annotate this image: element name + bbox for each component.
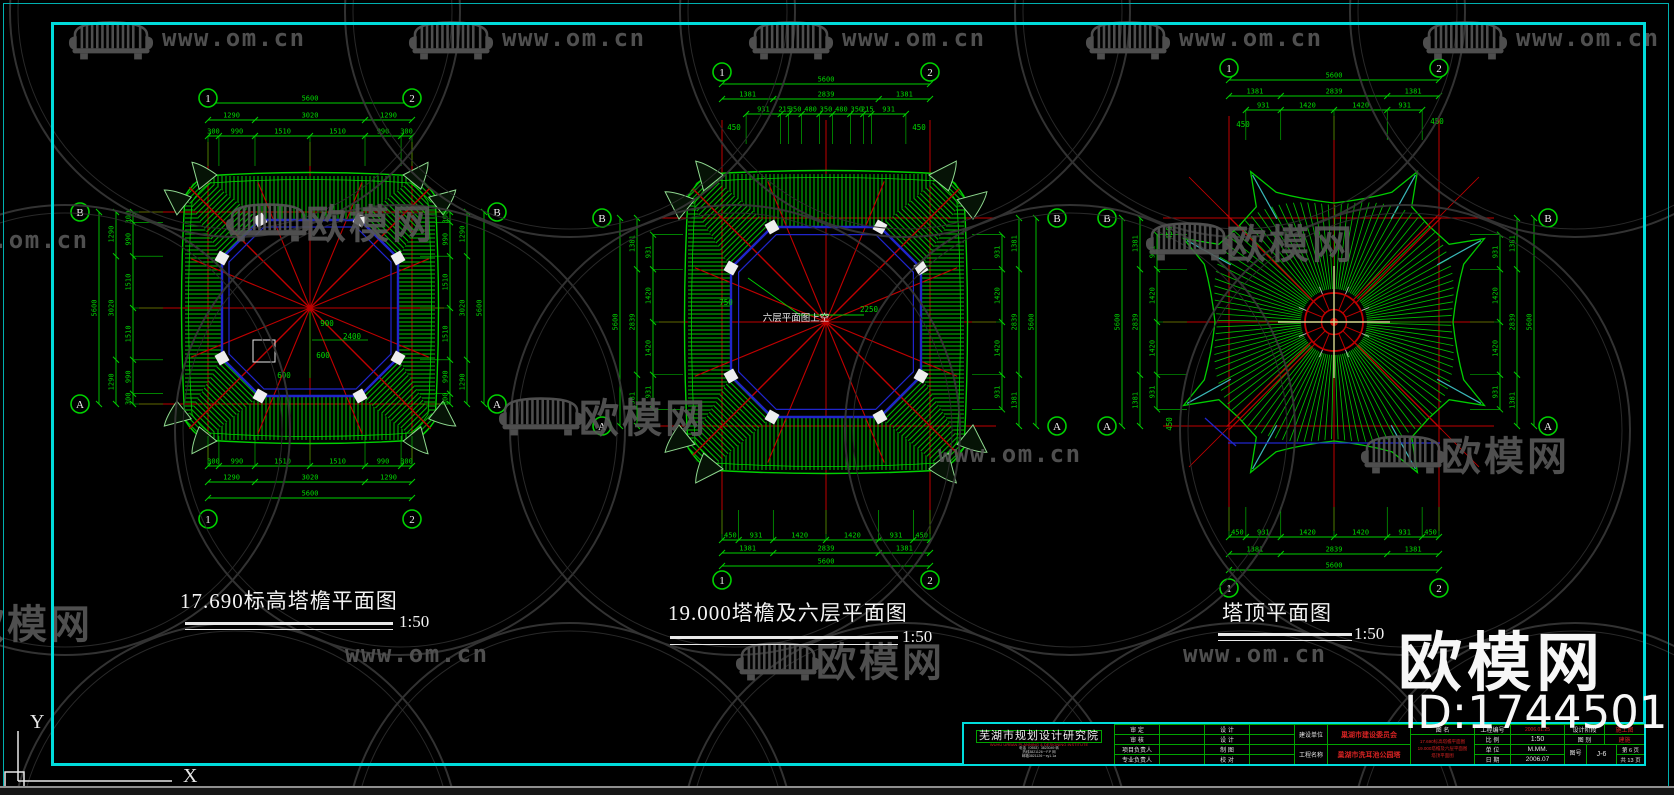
axis-bubble: 2	[921, 63, 939, 81]
dim-text: 1290	[108, 373, 116, 390]
dim-text: 931	[1149, 386, 1157, 399]
dim-text: 1420	[994, 287, 1002, 304]
dim-text: 450	[912, 123, 926, 132]
axis-bubble: A	[1048, 417, 1066, 435]
dim-text: 5600	[1526, 314, 1534, 331]
dim-text: 1290	[223, 474, 240, 482]
dim-text: 1381	[1132, 235, 1140, 252]
dim-text: 300	[207, 128, 220, 136]
axis-bubble-label: B	[1103, 213, 1110, 225]
axis-bubble: 2	[1430, 59, 1448, 77]
dim-text: 1420	[1352, 102, 1369, 110]
institute-name: 芜湖市规划设计研究院	[976, 730, 1102, 744]
dim-text: 990	[125, 233, 133, 246]
dim-text: 1420	[994, 340, 1002, 357]
institute-box: 芜湖市规划设计研究院 WUHU URBAN PLANNING & DESIGNI…	[964, 724, 1114, 764]
plan1-underline-thin	[185, 629, 393, 630]
dim-text: 1381	[1509, 392, 1517, 409]
dim-text: 450	[1424, 529, 1437, 537]
url-watermark-text: www.om.cn	[1179, 24, 1323, 52]
dim-text: 5600	[1028, 314, 1036, 331]
dim-text: 5600	[818, 558, 835, 566]
value-shending	[1159, 724, 1204, 734]
dim-text: 1420	[791, 532, 808, 540]
sofa-watermark-icon	[69, 23, 153, 60]
plan-3-drawing: 5600138128391381931142014209314509311420…	[1098, 59, 1557, 597]
dim-text: 1420	[1352, 529, 1369, 537]
date-label: 日 期	[1474, 754, 1510, 764]
page-value: 第 6 页	[1616, 744, 1644, 754]
dim-text: 931	[994, 386, 1002, 399]
unit-label: 单 位	[1474, 744, 1510, 754]
axis-bubble-label: A	[1053, 421, 1061, 433]
dim-text: 1510	[329, 458, 346, 466]
dim-text: 5600	[476, 300, 484, 317]
axis-bubble-label: 1	[1226, 63, 1232, 75]
dim-text: 931	[882, 106, 895, 114]
sheet-value: J-6	[1586, 744, 1616, 764]
ucs-x-label: X	[183, 765, 198, 787]
sheet-label: 图号	[1564, 744, 1586, 764]
plan3-underline	[1218, 633, 1352, 636]
dim-text: 5600	[302, 490, 319, 498]
dim-text: 1381	[896, 545, 913, 553]
axis-bubble-label: 2	[1436, 583, 1442, 595]
dim-text: 3020	[108, 300, 116, 317]
plan3-underline-thin	[1218, 640, 1352, 641]
label-jiaodui: 校 对	[1204, 754, 1249, 764]
dim-text: 1420	[1492, 287, 1500, 304]
axis-bubble-label: B	[598, 213, 605, 225]
outer-frame-right	[1668, 3, 1669, 786]
dim-text: 1510	[442, 274, 450, 291]
axis-bubble-label: 1	[719, 575, 725, 587]
value-jiaodui	[1249, 754, 1294, 764]
label-shending: 审 定	[1114, 724, 1159, 734]
dim-text: 931	[1257, 102, 1270, 110]
plan2-scale: 1:50	[902, 627, 932, 647]
brand-watermark-text: 欧模网	[579, 397, 708, 441]
dim-text: 2839	[1326, 546, 1343, 554]
brand-watermark-text: 欧模网	[1441, 435, 1570, 479]
label-xiangmu: 项目负责人	[1114, 744, 1159, 754]
dim-text: 1420	[1492, 340, 1500, 357]
axis-bubble-label: A	[1544, 421, 1552, 433]
value-shenhe	[1159, 734, 1204, 744]
axis-bubble: A	[1539, 417, 1557, 435]
plan3-scale: 1:50	[1354, 624, 1384, 644]
dim-text: 1420	[1149, 340, 1157, 357]
dim-text: 1510	[442, 325, 450, 342]
dim-text: 1420	[645, 340, 653, 357]
axis-bubble-label: A	[76, 399, 84, 411]
dim-text: 350	[820, 106, 833, 114]
axis-bubble-label: 1	[719, 67, 725, 79]
dim-text: 450	[727, 123, 741, 132]
axis-bubble: B	[1539, 209, 1557, 227]
axis-bubble-label: 2	[927, 67, 933, 79]
dim-text: 1381	[1132, 392, 1140, 409]
dim-text: 300	[400, 458, 413, 466]
dim-text: 5600	[302, 95, 319, 103]
dim-text: 1381	[739, 545, 756, 553]
plan3-caption: 塔顶平面图	[1222, 597, 1332, 627]
dim-text: 450	[724, 532, 737, 540]
label-zhuanye: 专业负责人	[1114, 754, 1159, 764]
dim-text: 480	[835, 106, 848, 114]
dim-text: 2839	[1326, 88, 1343, 96]
dim-text: 750	[719, 298, 733, 307]
outer-frame-top	[3, 3, 1669, 4]
dim-text: 5600	[818, 76, 835, 84]
date-value: 2006.07	[1510, 754, 1564, 764]
dim-text: 480	[804, 106, 817, 114]
plan-2-drawing: 5600138128391381931215350480350480350215…	[593, 63, 1066, 589]
dim-text: 931	[1398, 102, 1411, 110]
dim-text: 3020	[302, 112, 319, 120]
dim-text: 1290	[459, 373, 467, 390]
url-watermark-text: www.om.cn	[1516, 24, 1660, 52]
project-label: 工程名称	[1294, 744, 1327, 764]
axis-bubble-label: 2	[1436, 63, 1442, 75]
dim-text: 450	[1236, 120, 1250, 129]
axis-bubble-label: 2	[927, 575, 933, 587]
bottom-strip	[0, 788, 1674, 795]
url-watermark-text: www.om.cn	[938, 440, 1082, 468]
dim-text: 931	[645, 246, 653, 259]
dim-text: 1381	[1405, 546, 1422, 554]
dim-text: 215	[861, 106, 874, 114]
institute-line3: 邮箱3821126－xy1.1a	[1022, 755, 1056, 759]
cad-viewport: 5600129030201290300990151015109903003009…	[0, 0, 1674, 795]
dim-text: 931	[1398, 529, 1411, 537]
axis-bubble-label: A	[493, 399, 501, 411]
dim-text: 1381	[896, 91, 913, 99]
unit-value: M.MM.	[1510, 744, 1564, 754]
sofa-watermark-icon	[1361, 437, 1445, 474]
pages-value: 共 13 页	[1616, 754, 1644, 764]
axis-bubble: 2	[403, 510, 421, 528]
ucs-icon: YX	[5, 711, 198, 788]
dim-text: 1290	[223, 112, 240, 120]
label-sheji2: 设 计	[1204, 734, 1249, 744]
dim-text: 300	[125, 393, 133, 406]
dim-text: 1290	[459, 226, 467, 243]
dim-text: 1381	[739, 91, 756, 99]
axis-bubble: A	[71, 395, 89, 413]
dim-text: 2400	[343, 332, 362, 341]
drawing-name-3: 塔顶平面图	[1431, 753, 1454, 760]
dim-text: 990	[442, 370, 450, 383]
dim-text: 1381	[1405, 88, 1422, 96]
axis-bubble-label: 2	[409, 514, 415, 526]
dim-text: 六层平面图上空	[763, 312, 830, 324]
dim-text: 1381	[1011, 235, 1019, 252]
dim-text: 931	[994, 246, 1002, 259]
url-watermark-text: www.om.cn	[842, 24, 986, 52]
watermark-id: ID:1744501	[1404, 686, 1668, 739]
dim-text: 450	[1165, 417, 1174, 431]
dim-text: 2250	[860, 305, 879, 314]
axis-bubble-label: 2	[409, 93, 415, 105]
dim-text: 5600	[612, 314, 620, 331]
brand-watermark-text: 欧模网	[816, 641, 945, 685]
dim-text: 1510	[125, 325, 133, 342]
drawing-name-2: 19.000塔檐及六层平面图	[1418, 746, 1468, 753]
ucs-y-label: Y	[30, 711, 44, 733]
label-sheji1: 设 计	[1204, 724, 1249, 734]
dim-text: 1420	[645, 287, 653, 304]
value-xiangmu	[1159, 744, 1204, 754]
label-zhitu: 制 图	[1204, 744, 1249, 754]
project-value: 巢湖市洗耳池公园塔	[1327, 744, 1410, 764]
sofa-watermark-icon	[1146, 224, 1230, 261]
axis-bubble-label: 1	[205, 514, 211, 526]
dim-text: 1381	[1246, 88, 1263, 96]
dim-text: 1290	[380, 112, 397, 120]
axis-bubble-label: A	[1103, 421, 1111, 433]
axis-bubble: B	[1098, 209, 1116, 227]
value-sheji2	[1249, 734, 1294, 744]
dim-text: 1290	[108, 226, 116, 243]
dim-text: 5600	[1114, 314, 1122, 331]
brand-watermark-text: 欧模网	[1226, 223, 1355, 267]
axis-bubble: A	[488, 395, 506, 413]
dim-text: 2839	[818, 545, 835, 553]
client-label: 建设单位	[1294, 724, 1327, 744]
dim-text: 450	[1231, 529, 1244, 537]
axis-bubble: 2	[921, 571, 939, 589]
dim-text: 990	[231, 458, 244, 466]
dim-text: 1420	[1149, 287, 1157, 304]
url-watermark-text: www.om.cn	[0, 226, 89, 254]
axis-bubble-label: B	[1053, 213, 1060, 225]
dim-text: 2839	[1011, 314, 1019, 331]
axis-bubble: 2	[403, 89, 421, 107]
plan2-underline-thin	[670, 644, 898, 645]
url-watermark-text: www.om.cn	[162, 24, 306, 52]
dim-text: 1510	[125, 274, 133, 291]
dim-text: 2839	[629, 314, 637, 331]
dim-text: 900	[320, 319, 334, 328]
outer-frame-left	[3, 3, 4, 786]
dim-text: 3020	[459, 300, 467, 317]
plan1-scale: 1:50	[399, 612, 429, 632]
dim-text: 5600	[91, 300, 99, 317]
value-zhitu	[1249, 744, 1294, 754]
dim-text: 600	[316, 351, 330, 360]
dim-text: 990	[442, 233, 450, 246]
dim-text: 931	[750, 532, 763, 540]
client-value: 巢湖市建设委员会	[1327, 724, 1410, 744]
axis-bubble: A	[1098, 417, 1116, 435]
axis-bubble-label: 1	[205, 93, 211, 105]
dim-text: 1420	[1299, 102, 1316, 110]
plan2-underline	[670, 636, 898, 639]
url-watermark-text: www.om.cn	[1183, 640, 1327, 668]
dim-text: 5600	[1326, 72, 1343, 80]
dim-text: 1381	[1011, 392, 1019, 409]
dim-text: 300	[207, 458, 220, 466]
axis-bubble: 1	[713, 63, 731, 81]
value-zhuanye	[1159, 754, 1204, 764]
plan2-caption: 19.000塔檐及六层平面图	[668, 597, 908, 627]
brand-watermark-text: 欧模网	[306, 203, 435, 247]
dim-text: 990	[231, 128, 244, 136]
dim-text: 990	[377, 458, 390, 466]
dim-text: 2839	[1132, 314, 1140, 331]
dim-text: 931	[1492, 386, 1500, 399]
url-watermark-text: www.om.cn	[345, 640, 489, 668]
label-shenhe: 审 核	[1114, 734, 1159, 744]
dim-text: 931	[1492, 246, 1500, 259]
axis-bubble: 2	[1430, 579, 1448, 597]
axis-bubble: B	[1048, 209, 1066, 227]
brand-watermark-text: 欧模网	[0, 603, 93, 647]
dim-text: 990	[125, 370, 133, 383]
plan1-underline	[185, 622, 393, 625]
dim-text: 931	[890, 532, 903, 540]
dim-text: 1510	[274, 128, 291, 136]
dim-text: 300	[442, 393, 450, 406]
axis-bubble: B	[593, 209, 611, 227]
dim-text: 2839	[1509, 314, 1517, 331]
sofa-watermark-icon	[499, 399, 583, 436]
axis-bubble: 1	[199, 89, 217, 107]
value-sheji1	[1249, 724, 1294, 734]
url-watermark-text: www.om.cn	[502, 24, 646, 52]
dim-text: 350	[789, 106, 802, 114]
dim-text: 1420	[1299, 529, 1316, 537]
dim-text: 5600	[1326, 562, 1343, 570]
dim-text: 3020	[302, 474, 319, 482]
dim-text: 2839	[818, 91, 835, 99]
dim-text: 1290	[380, 474, 397, 482]
dim-text: 300	[400, 128, 413, 136]
plans-layer: 5600129030201290300990151015109903003009…	[71, 59, 1557, 597]
axis-bubble: 1	[1220, 59, 1238, 77]
dim-text: 1420	[844, 532, 861, 540]
axis-bubble: 1	[713, 571, 731, 589]
plan1-caption: 17.690标高塔檐平面图	[180, 585, 398, 615]
dim-text: 1510	[329, 128, 346, 136]
axis-bubble-label: B	[1544, 213, 1551, 225]
